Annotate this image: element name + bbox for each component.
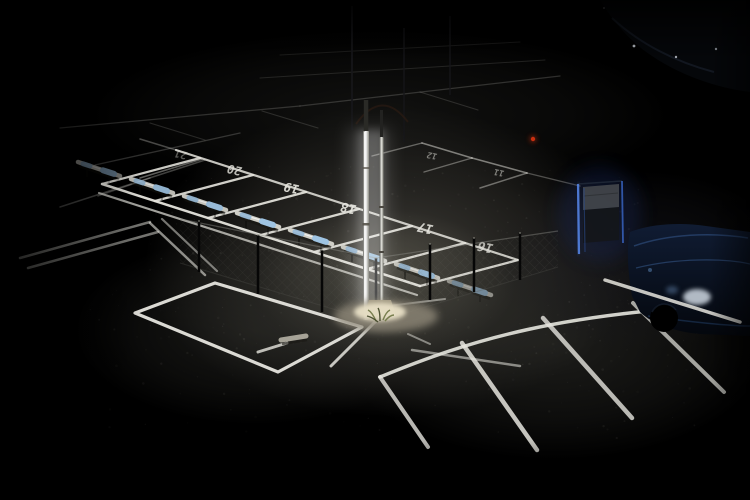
light-pole xyxy=(348,100,390,324)
pole-base xyxy=(334,300,438,332)
night-parking-lot-photo: 2120191817161211 xyxy=(0,0,750,500)
door-highlight xyxy=(683,289,711,305)
blue-sleeve xyxy=(315,238,326,242)
blue-sleeve xyxy=(242,215,249,217)
sign-blue-edge xyxy=(622,181,623,243)
blue-sleeve xyxy=(262,221,273,225)
blue-sleeve xyxy=(189,198,196,200)
blue-sleeve xyxy=(295,232,302,234)
blue-sleeve xyxy=(156,187,167,191)
sign-panel xyxy=(583,184,619,210)
car-mirror xyxy=(648,268,652,272)
blue-sleeve xyxy=(209,204,220,208)
red-light xyxy=(529,135,537,143)
parking-lot-scene: 2120191817161211 xyxy=(0,0,750,500)
pole-second xyxy=(380,137,384,313)
